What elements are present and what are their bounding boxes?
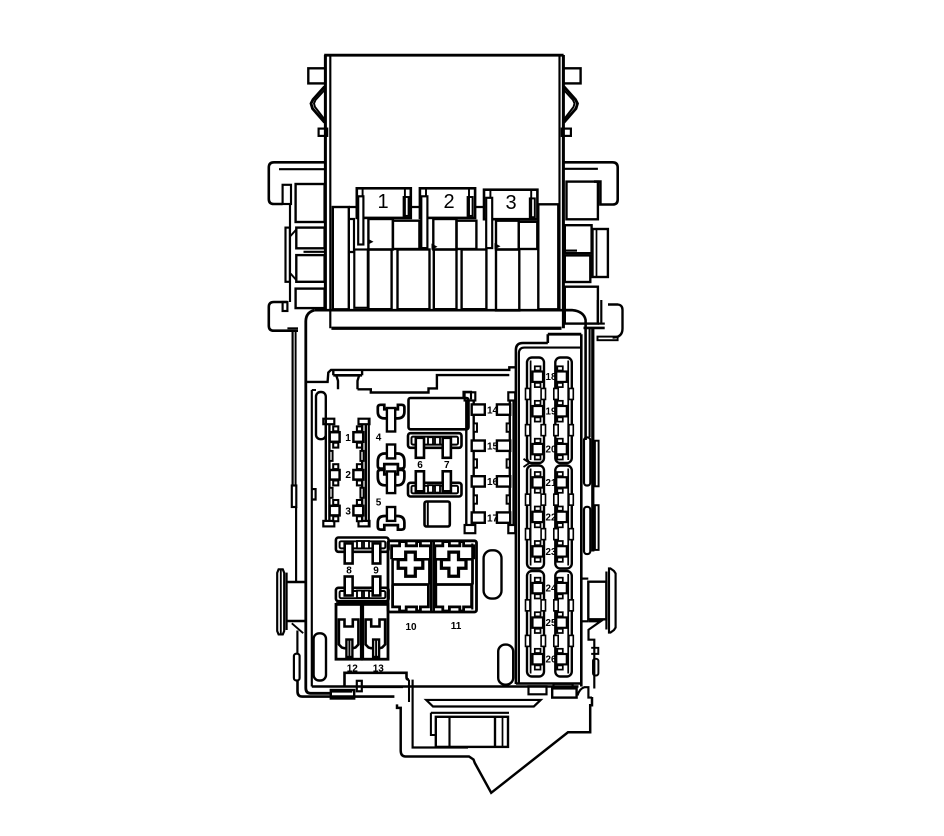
svg-text:9: 9 (373, 566, 379, 577)
svg-text:7: 7 (444, 460, 450, 471)
svg-text:2: 2 (443, 191, 454, 213)
svg-text:1: 1 (377, 191, 388, 213)
svg-text:11: 11 (451, 621, 462, 632)
svg-text:23: 23 (546, 547, 557, 558)
svg-text:18: 18 (546, 372, 557, 383)
svg-text:5: 5 (376, 498, 382, 509)
svg-text:2: 2 (345, 470, 351, 481)
svg-text:3: 3 (345, 507, 351, 518)
svg-text:10: 10 (405, 622, 417, 633)
svg-text:4: 4 (376, 433, 382, 444)
svg-text:20: 20 (546, 445, 557, 456)
svg-text:22: 22 (546, 512, 557, 523)
svg-text:1: 1 (345, 433, 351, 444)
svg-text:21: 21 (546, 478, 557, 489)
svg-text:16: 16 (487, 477, 499, 488)
svg-text:19: 19 (546, 407, 557, 418)
svg-text:25: 25 (546, 618, 557, 629)
svg-text:24: 24 (546, 584, 557, 595)
svg-text:8: 8 (346, 566, 352, 577)
svg-text:14: 14 (487, 406, 499, 417)
svg-text:6: 6 (417, 460, 423, 471)
svg-text:17: 17 (487, 513, 499, 524)
svg-text:15: 15 (487, 442, 499, 453)
svg-text:26: 26 (546, 655, 557, 666)
svg-text:3: 3 (505, 192, 516, 214)
